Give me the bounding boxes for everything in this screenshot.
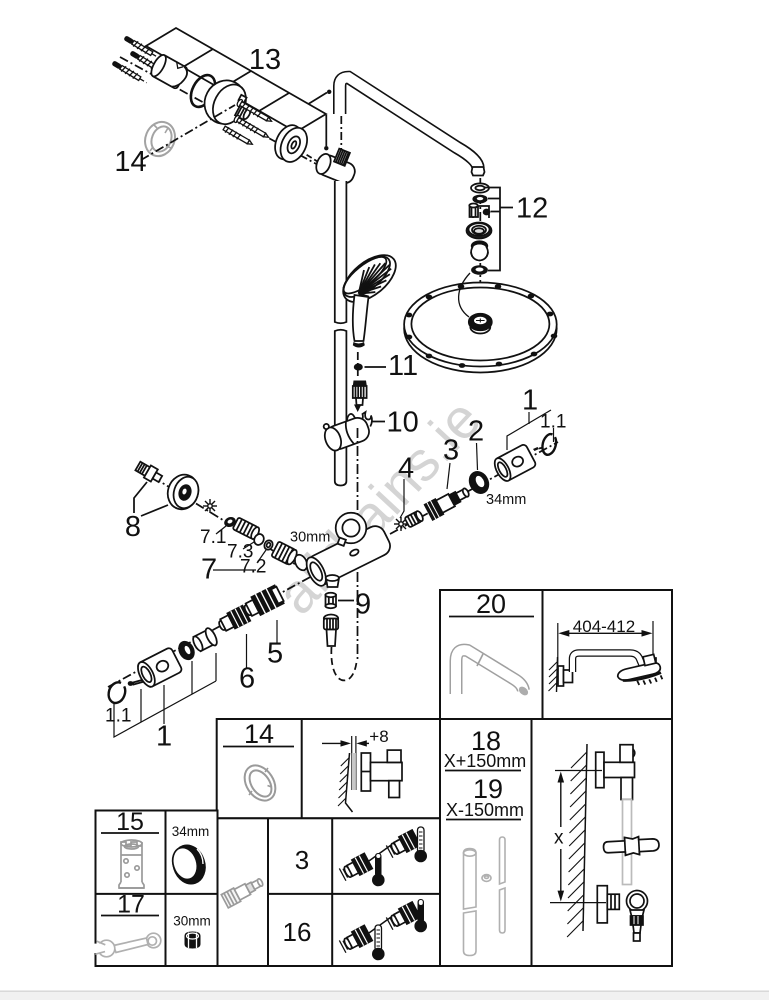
svg-text:2: 2 <box>468 416 484 448</box>
svg-text:X+150mm: X+150mm <box>444 751 527 771</box>
svg-text:12: 12 <box>516 193 548 225</box>
svg-text:15: 15 <box>116 808 144 836</box>
svg-text:1.1: 1.1 <box>105 706 131 727</box>
svg-text:1: 1 <box>522 385 538 417</box>
svg-text:9: 9 <box>355 589 371 621</box>
svg-text:34mm: 34mm <box>486 492 526 508</box>
svg-text:1.1: 1.1 <box>540 412 566 433</box>
svg-text:X-150mm: X-150mm <box>446 800 524 820</box>
svg-text:30mm: 30mm <box>173 914 211 929</box>
svg-text:34mm: 34mm <box>172 824 210 839</box>
svg-text:14: 14 <box>244 719 274 749</box>
svg-text:4: 4 <box>398 453 414 485</box>
svg-text:30mm: 30mm <box>290 530 330 546</box>
svg-text:16: 16 <box>283 917 312 947</box>
svg-text:13: 13 <box>249 44 281 76</box>
svg-text:17: 17 <box>117 891 145 919</box>
svg-text:3: 3 <box>443 435 459 467</box>
svg-text:x: x <box>554 828 564 849</box>
svg-text:+8: +8 <box>369 727 388 746</box>
svg-text:5: 5 <box>267 638 283 670</box>
svg-text:8: 8 <box>125 511 141 543</box>
svg-text:7.2: 7.2 <box>240 557 266 578</box>
svg-text:20: 20 <box>476 589 506 619</box>
svg-text:1: 1 <box>156 721 172 753</box>
svg-text:14: 14 <box>114 146 146 178</box>
svg-text:10: 10 <box>387 407 419 439</box>
svg-text:7.1: 7.1 <box>200 527 226 548</box>
svg-text:11: 11 <box>388 350 418 382</box>
svg-text:6: 6 <box>239 663 255 695</box>
svg-text:3: 3 <box>295 845 309 875</box>
